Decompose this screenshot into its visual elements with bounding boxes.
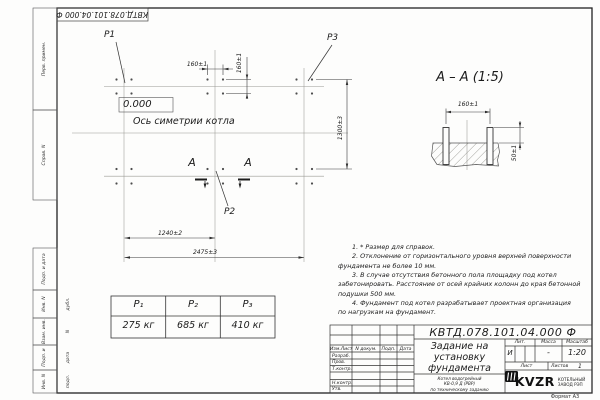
title-block-sheets-label: Листов	[551, 364, 568, 369]
section-title: А – А (1:5)	[420, 70, 520, 85]
title-block-title-line-1: Задание на	[414, 341, 505, 352]
section-dim-50: 50±1	[511, 140, 519, 166]
note-line-8: по нагрузкам на фундамент.	[338, 308, 436, 316]
logo-text: KVZR	[515, 374, 555, 389]
title-block-mass-value: -	[535, 348, 562, 357]
title-block-row-tkontr: Т.контр.	[332, 367, 352, 372]
note-line-7: 4. Фундамент под котел разрабатывает про…	[352, 299, 571, 307]
top-stamp-number: КВТД.078.101.04.000 Ф	[57, 8, 148, 21]
title-block-lit-label: Лит.	[505, 340, 535, 345]
dim-bolt-spacing-x: 160±1	[184, 61, 210, 68]
load-table-value-p1: 275 кг	[111, 320, 166, 331]
title-block-mass-label: Масса	[535, 340, 562, 345]
note-line-5: забетонировать. Расстояние от осей крайн…	[338, 280, 580, 288]
title-block-header-n-dokum: N докум.	[352, 347, 380, 352]
dim-1240: 1240±2	[150, 230, 190, 237]
load-table-header-p2: P₂	[166, 299, 220, 310]
title-block-sheets-value: 1	[578, 363, 582, 370]
drawing-sheet: КВТД.078.101.04.000 Ф Перв. примен. Спра…	[0, 0, 600, 400]
company-block: KVZR КОТЕЛЬНЫЙ ЗАВОД РЭП	[505, 370, 592, 393]
note-line-6: подушки 500 мм.	[338, 290, 396, 298]
sidebar-field-inv-podl: Инв. N подл.	[33, 370, 57, 393]
title-block-subject-line-3: по техническому заданию	[414, 387, 505, 393]
note-line-1: 1. * Размер для справок.	[352, 243, 435, 251]
title-block-title-line-3: фундамента	[414, 363, 505, 374]
company-name-line-1: КОТЕЛЬНЫЙ	[558, 377, 585, 382]
title-block-title-line-2: установку	[414, 352, 505, 363]
load-table-header-p1: P₁	[111, 299, 166, 310]
sidebar-field-inv-dubl: Инв. N дубл.	[33, 290, 57, 318]
sidebar-field-podp-data-1: Подп. и дата	[33, 248, 57, 290]
plan-elevation-mark: 0.000	[123, 99, 152, 110]
title-block-header-podp: Подп.	[380, 347, 397, 352]
plan-axis-caption: Ось симетрии котла	[133, 116, 235, 127]
load-table-value-p2: 685 кг	[166, 320, 220, 331]
load-table-value-p3: 410 кг	[220, 320, 275, 331]
note-line-2: 2. Отклонение от горизонтального уровня …	[352, 252, 571, 260]
plan-label-p3: P3	[327, 33, 338, 43]
title-block-doc-number: КВТД.078.101.04.000 Ф	[414, 326, 592, 339]
company-name-line-2: ЗАВОД РЭП	[558, 382, 585, 387]
load-table-header-p3: P₃	[220, 299, 275, 310]
title-block-scale-value: 1:20	[562, 348, 592, 357]
section-letter-left: А	[186, 156, 198, 169]
dim-1300: 1300±3	[337, 115, 345, 141]
sidebar-field-sprav-n: Справ. N	[33, 110, 57, 200]
sidebar-field-podp-data-2: Подп. и дата	[33, 345, 57, 370]
title-block-row-razrab: Разраб.	[332, 354, 350, 359]
title-block-row-nkontr: Н.контр.	[332, 381, 353, 386]
title-block-scale-label: Масштаб	[562, 340, 592, 345]
plan-label-p1: P1	[104, 30, 115, 40]
sidebar-field-perv-primen: Перв. примен.	[33, 8, 57, 110]
dim-bolt-spacing-y: 160±1	[236, 50, 244, 76]
note-line-3: фундамента не более 10 мм.	[338, 262, 436, 270]
note-line-4: 3. В случае отсутствия бетонного пола пл…	[352, 271, 557, 279]
title-block-header-data: Дата	[397, 347, 414, 352]
title-block-row-prov: Пров.	[332, 360, 345, 365]
title-block-row-utv: Утв.	[332, 387, 342, 392]
section-letter-right: А	[242, 156, 254, 169]
title-block-header-izm-list: Изм.Лист	[330, 347, 352, 352]
sidebar-field-vzam-inv: Взам. инв. N	[33, 318, 57, 345]
title-block-lit-value: И	[505, 349, 515, 357]
plan-label-p2: P2	[224, 207, 235, 217]
section-dim-160: 160±1	[455, 101, 481, 108]
title-block-sheet-label: Лист	[505, 364, 548, 369]
dim-2475: 2475±3	[185, 249, 225, 256]
format-label: Формат А3	[538, 394, 592, 400]
